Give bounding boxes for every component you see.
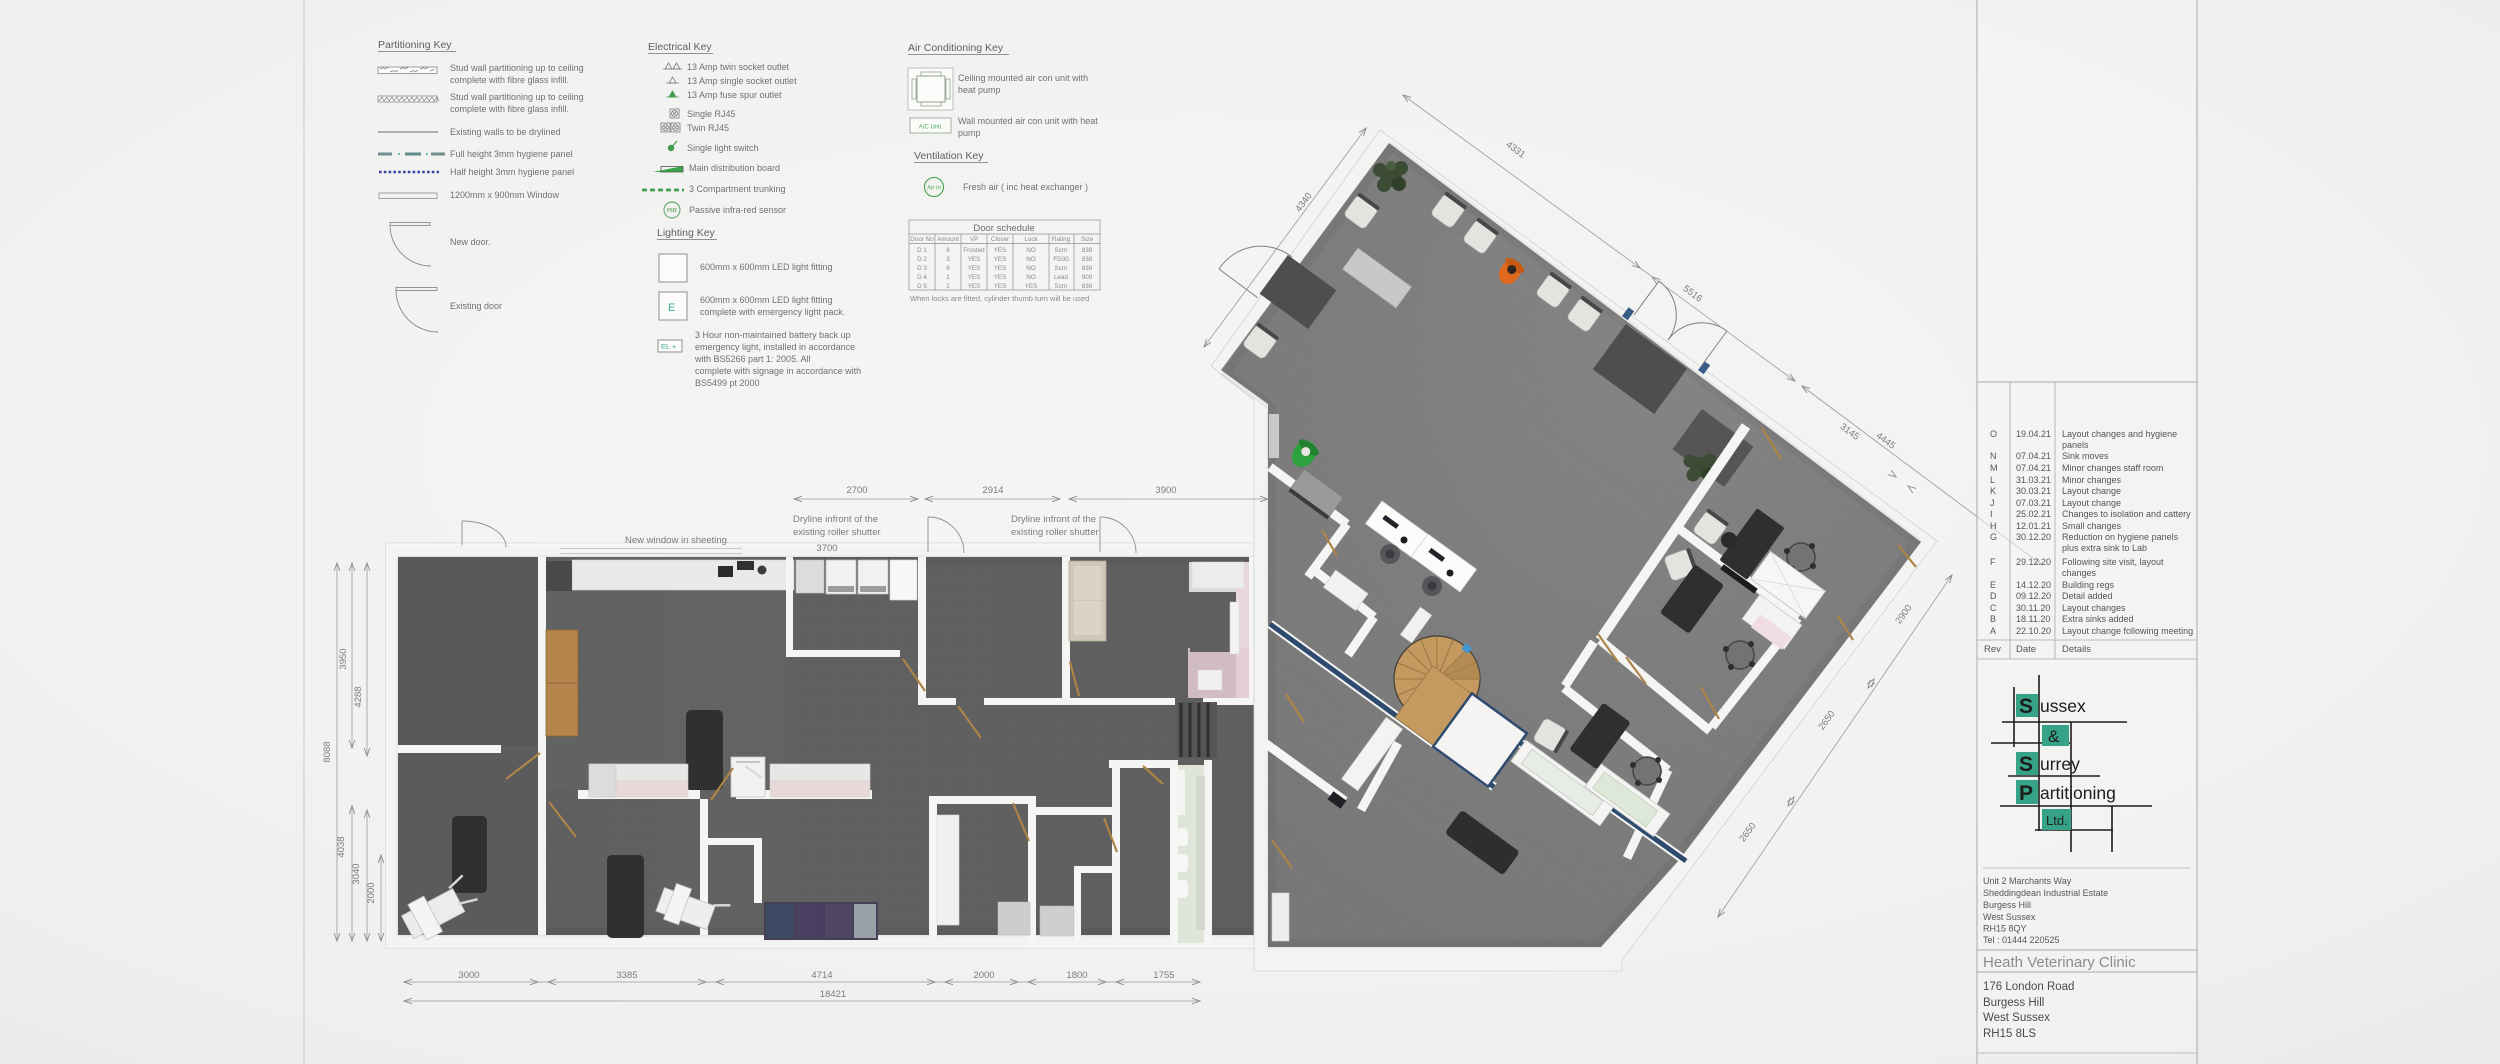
svg-text:Existing walls to be drylined: Existing walls to be drylined (450, 127, 561, 137)
svg-text:FD30: FD30 (1053, 256, 1069, 263)
svg-text:3950: 3950 (338, 648, 349, 669)
svg-text:07.04.21: 07.04.21 (2016, 451, 2051, 461)
svg-text:existing roller shutter: existing roller shutter (793, 527, 881, 538)
svg-text:urrey: urrey (2040, 754, 2080, 774)
svg-text:Ceiling mounted air con unit w: Ceiling mounted air con unit with (958, 73, 1088, 83)
svg-text:Small changes: Small changes (2062, 521, 2122, 531)
svg-text:4038: 4038 (336, 836, 347, 857)
svg-text:VP: VP (970, 236, 978, 243)
svg-text:6: 6 (946, 265, 950, 272)
svg-text:YES: YES (994, 256, 1007, 263)
svg-text:600mm x 600mm LED light fittin: 600mm x 600mm LED light fitting (700, 262, 833, 272)
svg-text:600mm x 600mm LED light fittin: 600mm x 600mm LED light fitting (700, 295, 833, 305)
svg-text:When locks are fitted, cylind: When locks are fitted, cylinder thumb tu… (910, 294, 1089, 303)
svg-text:M: M (1990, 463, 1998, 473)
svg-text:1: 1 (946, 274, 950, 281)
svg-text:Full height 3mm hygiene panel: Full height 3mm hygiene panel (450, 149, 573, 159)
svg-text:Heath Veterinary Clinic: Heath Veterinary Clinic (1983, 954, 2136, 971)
svg-text:8088: 8088 (322, 741, 333, 762)
svg-text:Burgess Hill: Burgess Hill (1983, 997, 2044, 1009)
svg-text:14.12.20: 14.12.20 (2016, 580, 2051, 590)
svg-text:New door.: New door. (450, 237, 491, 247)
svg-text:Rev: Rev (1984, 644, 2001, 655)
svg-text:Closer: Closer (991, 236, 1009, 243)
svg-text:NO: NO (1026, 274, 1036, 281)
svg-text:E: E (1990, 580, 1996, 590)
svg-text:complete with fibre glass infi: complete with fibre glass infill. (450, 75, 569, 85)
svg-text:18.11.20: 18.11.20 (2016, 614, 2050, 624)
svg-text:4288: 4288 (353, 686, 364, 707)
svg-text:panels: panels (2062, 440, 2089, 450)
svg-text:900: 900 (1082, 274, 1093, 281)
svg-text:Partitioning Key: Partitioning Key (378, 39, 452, 51)
svg-text:Single light switch: Single light switch (687, 143, 759, 153)
svg-text:838: 838 (1082, 247, 1093, 254)
svg-text:Details: Details (2062, 644, 2091, 655)
svg-text:09.12.20: 09.12.20 (2016, 591, 2051, 601)
svg-text:YES: YES (1025, 283, 1038, 290)
svg-text:2: 2 (946, 283, 950, 290)
svg-text:Layout change: Layout change (2062, 498, 2121, 508)
svg-text:Lighting Key: Lighting Key (657, 227, 716, 239)
svg-text:Layout change following meetin: Layout change following meeting (2062, 626, 2193, 636)
svg-text:Door schedule: Door schedule (973, 223, 1034, 234)
svg-text:A/C Unit: A/C Unit (919, 125, 942, 131)
svg-text:2000: 2000 (366, 882, 377, 903)
svg-text:D 5: D 5 (917, 283, 927, 290)
svg-text:B: B (1990, 614, 1996, 624)
svg-text:heat pump: heat pump (958, 85, 1001, 95)
svg-text:S: S (2019, 753, 2033, 776)
svg-text:176 London Road: 176 London Road (1983, 981, 2074, 993)
svg-text:13 Amp single socket outlet: 13 Amp single socket outlet (687, 76, 797, 86)
svg-text:3 Compartment trunking: 3 Compartment trunking (689, 184, 786, 194)
svg-text:Changes to isolation and catte: Changes to isolation and cattery (2062, 509, 2191, 519)
svg-text:C: C (1990, 603, 1997, 613)
svg-text:19.04.21: 19.04.21 (2016, 429, 2051, 439)
svg-text:Layout changes: Layout changes (2062, 603, 2126, 613)
svg-text:Door No: Door No (910, 236, 934, 243)
svg-text:3700: 3700 (816, 543, 837, 554)
svg-text:Ltd.: Ltd. (2046, 813, 2068, 828)
svg-text:Lock: Lock (1024, 236, 1038, 243)
svg-text:13 Amp twin socket outlet: 13 Amp twin socket outlet (687, 62, 790, 72)
svg-text:RH15 8QY: RH15 8QY (1983, 924, 2027, 934)
svg-text:3: 3 (946, 256, 950, 263)
svg-text:YES: YES (994, 274, 1007, 281)
svg-text:complete with fibre glass infi: complete with fibre glass infill. (450, 104, 569, 114)
svg-text:complete with emergency light: complete with emergency light pack. (700, 307, 845, 317)
svg-text:J: J (1990, 498, 1995, 508)
svg-text:Following site visit, layout: Following site visit, layout (2062, 557, 2164, 567)
svg-text:Twin RJ45: Twin RJ45 (687, 123, 729, 133)
svg-text:Detail added: Detail added (2062, 591, 2113, 601)
svg-text:RH15 8LS: RH15 8LS (1983, 1028, 2036, 1040)
svg-text:31.03.21: 31.03.21 (2016, 475, 2051, 485)
svg-text:YES: YES (968, 283, 981, 290)
svg-text:D 3: D 3 (917, 265, 927, 272)
svg-text:1200mm x 900mm Window: 1200mm x 900mm Window (450, 190, 560, 200)
svg-text:Fresh air ( inc heat exchanger: Fresh air ( inc heat exchanger ) (963, 182, 1088, 192)
svg-text:D 2: D 2 (917, 256, 927, 263)
svg-text:3385: 3385 (616, 970, 637, 981)
svg-text:YES: YES (968, 256, 981, 263)
svg-text:6: 6 (946, 247, 950, 254)
svg-text:Scrn: Scrn (1055, 283, 1068, 290)
svg-text:4714: 4714 (811, 970, 832, 981)
svg-text:Unit 2 Marchants Way: Unit 2 Marchants Way (1983, 876, 2072, 886)
svg-text:YES: YES (968, 274, 981, 281)
svg-text:Frosted: Frosted (963, 247, 985, 254)
svg-text:existing roller shutter: existing roller shutter (1011, 527, 1099, 538)
svg-text:838: 838 (1082, 256, 1093, 263)
svg-text:G: G (1990, 532, 1997, 542)
svg-text:pump: pump (958, 128, 981, 138)
svg-text:E: E (668, 302, 675, 314)
svg-text:07.03.21: 07.03.21 (2016, 498, 2051, 508)
svg-text:Wall mounted air con unit with: Wall mounted air con unit with heat (958, 116, 1098, 126)
svg-text:Minor changes staff room: Minor changes staff room (2062, 463, 2163, 473)
svg-text:Layout changes and hygiene: Layout changes and hygiene (2062, 429, 2177, 439)
svg-text:Electrical Key: Electrical Key (648, 41, 712, 53)
svg-text:13 Amp fuse spur outlet: 13 Amp fuse spur outlet (687, 90, 782, 100)
svg-text:NO: NO (1026, 256, 1036, 263)
svg-text:1800: 1800 (1066, 970, 1087, 981)
svg-text:Sink moves: Sink moves (2062, 451, 2109, 461)
svg-text:1755: 1755 (1153, 970, 1174, 981)
svg-text:2000: 2000 (973, 970, 994, 981)
svg-text:29.12.20: 29.12.20 (2016, 557, 2051, 567)
svg-text:Reduction on hygiene panels: Reduction on hygiene panels (2062, 532, 2179, 542)
svg-text:3000: 3000 (458, 970, 479, 981)
svg-text:K: K (1990, 486, 1996, 496)
svg-text:NO: NO (1026, 265, 1036, 272)
svg-text:07.04.21: 07.04.21 (2016, 463, 2051, 473)
svg-text:30.11.20: 30.11.20 (2016, 603, 2050, 613)
svg-text:complete with signage in accor: complete with signage in accordance with (695, 366, 861, 376)
svg-text:22.10.20: 22.10.20 (2016, 626, 2051, 636)
svg-text:Extra sinks added: Extra sinks added (2062, 614, 2134, 624)
svg-text:25.02.21: 25.02.21 (2016, 509, 2051, 519)
svg-text:Amount: Amount (937, 236, 959, 243)
svg-text:2700: 2700 (846, 485, 867, 496)
svg-text:YES: YES (968, 265, 981, 272)
svg-text:O: O (1990, 429, 1997, 439)
svg-text:P: P (2019, 782, 2033, 805)
svg-text:2914: 2914 (982, 485, 1003, 496)
svg-text:D: D (1990, 591, 1997, 601)
svg-text:emergency light, installed in: emergency light, installed in accordance (695, 342, 855, 352)
svg-text:West Sussex: West Sussex (1983, 1012, 2050, 1024)
svg-text:Single RJ45: Single RJ45 (687, 109, 736, 119)
svg-text:YES: YES (994, 283, 1007, 290)
svg-text:A: A (1990, 626, 1996, 636)
svg-text:Scrn: Scrn (1055, 247, 1068, 254)
svg-text:Dryline infront of the: Dryline infront of the (793, 514, 878, 525)
svg-text:Existing door: Existing door (450, 301, 502, 311)
svg-text:ussex: ussex (2040, 696, 2086, 716)
svg-text:D 4: D 4 (917, 274, 927, 281)
svg-text:Stud wall partitioning up to c: Stud wall partitioning up to ceiling (450, 63, 584, 73)
svg-text:YES: YES (994, 247, 1007, 254)
svg-text:S: S (2019, 695, 2033, 718)
svg-text:Building regs: Building regs (2062, 580, 2115, 590)
svg-text:Main distribution board: Main distribution board (689, 163, 780, 173)
svg-text:3 Hour non-maintained battery: 3 Hour non-maintained battery back up (695, 330, 851, 340)
svg-text:Stud wall partitioning up to c: Stud wall partitioning up to ceiling (450, 92, 584, 102)
svg-text:I: I (1990, 509, 1993, 519)
svg-text:Air in: Air in (927, 186, 941, 192)
svg-text:BS5499 pt 2000: BS5499 pt 2000 (695, 378, 760, 388)
svg-text:N: N (1990, 451, 1997, 461)
svg-text:EL +: EL + (661, 342, 677, 351)
svg-text:Half height 3mm hygiene panel: Half height 3mm hygiene panel (450, 167, 574, 177)
svg-text:changes: changes (2062, 568, 2097, 578)
svg-text:Burgess Hill: Burgess Hill (1983, 900, 2031, 910)
svg-text:H: H (1990, 521, 1997, 531)
svg-text:3900: 3900 (1155, 485, 1176, 496)
svg-text:30.12.20: 30.12.20 (2016, 532, 2051, 542)
svg-text:artitioning: artitioning (2040, 783, 2116, 803)
svg-text:Date: Date (2016, 644, 2036, 655)
svg-text:Scrn: Scrn (1055, 265, 1068, 272)
svg-text:D 1: D 1 (917, 247, 927, 254)
svg-text:Passive infra-red sensor: Passive infra-red sensor (689, 205, 786, 215)
svg-text:New window in sheeting: New window in sheeting (625, 535, 727, 546)
svg-text:Air Conditioning Key: Air Conditioning Key (908, 42, 1004, 54)
svg-text:Lead: Lead (1054, 274, 1069, 281)
svg-text:Dryline infront of the: Dryline infront of the (1011, 514, 1096, 525)
svg-text:Ventilation Key: Ventilation Key (914, 150, 984, 162)
svg-text:Tel : 01444 220525: Tel : 01444 220525 (1983, 935, 2060, 945)
svg-text:838: 838 (1082, 283, 1093, 290)
svg-text:838: 838 (1082, 265, 1093, 272)
svg-text:Sheddingdean Industrial Estate: Sheddingdean Industrial Estate (1983, 888, 2108, 898)
svg-text:PIR: PIR (667, 209, 678, 215)
svg-text:plus extra sink to Lab: plus extra sink to Lab (2062, 543, 2147, 553)
svg-text:Rating: Rating (1052, 236, 1071, 243)
svg-text:Size: Size (1081, 236, 1094, 243)
svg-text:3040: 3040 (351, 863, 362, 884)
svg-text:30.03.21: 30.03.21 (2016, 486, 2051, 496)
svg-text:with BS5266 part 1: 2005. All: with BS5266 part 1: 2005. All (694, 354, 811, 364)
svg-text:Layout change: Layout change (2062, 486, 2121, 496)
svg-text:Minor changes: Minor changes (2062, 475, 2122, 485)
svg-text:West Sussex: West Sussex (1983, 912, 2036, 922)
svg-text:F: F (1990, 557, 1996, 567)
svg-text:YES: YES (994, 265, 1007, 272)
svg-text:L: L (1990, 475, 1995, 485)
svg-text:&: & (2048, 727, 2060, 746)
svg-text:18421: 18421 (820, 989, 846, 1000)
svg-text:12.01.21: 12.01.21 (2016, 521, 2051, 531)
svg-text:NO: NO (1026, 247, 1036, 254)
